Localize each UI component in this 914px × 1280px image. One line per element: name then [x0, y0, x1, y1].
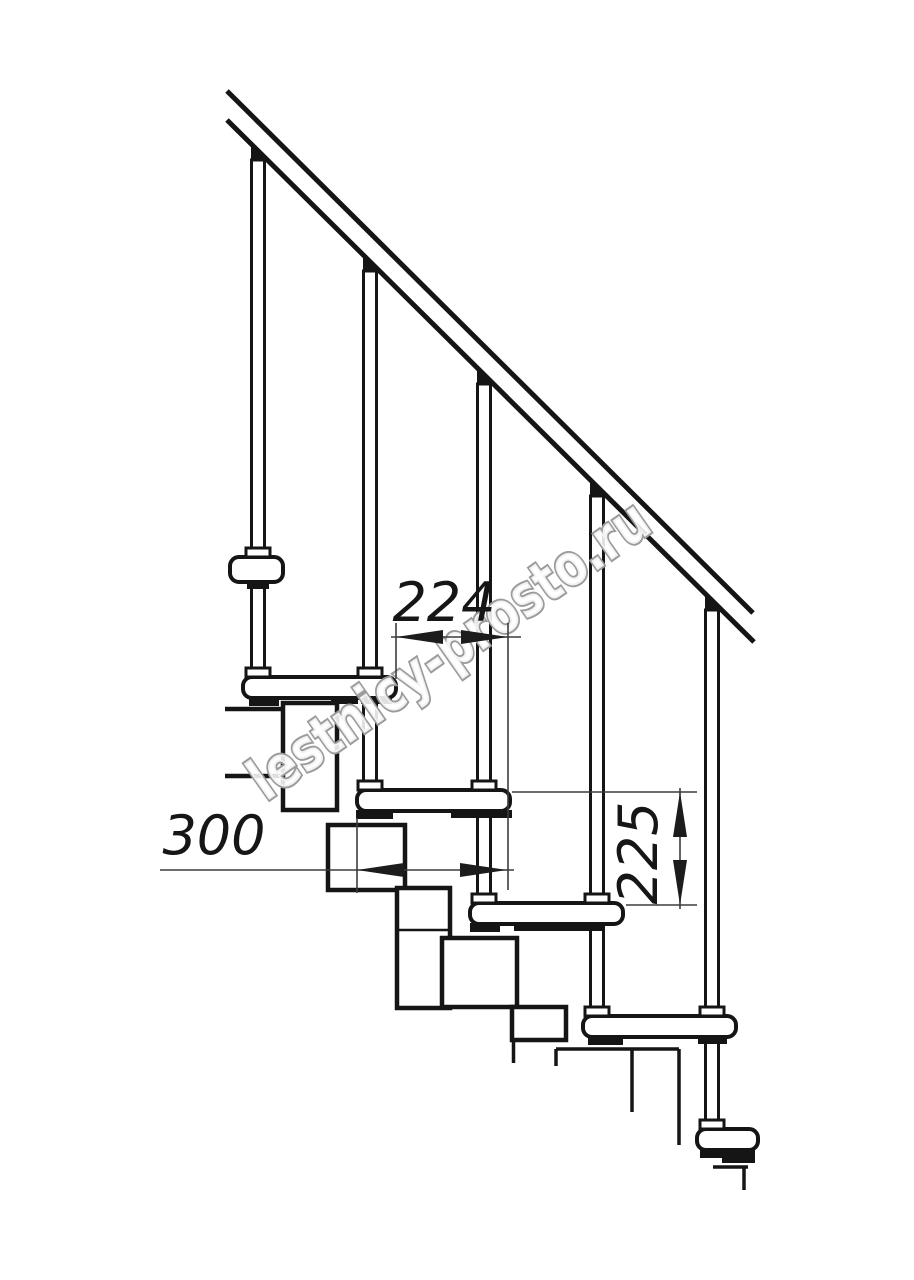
baluster-5: [706, 610, 719, 1129]
tread-5: [697, 1129, 758, 1150]
dimension-224-label: 224: [392, 571, 495, 634]
staircase-technical-drawing: lestnicy-prosto.ru 224 300 225: [0, 0, 914, 1280]
drawing-svg: lestnicy-prosto.ru 224 300 225: [0, 0, 914, 1280]
dimension-225-label: 225: [607, 801, 670, 904]
dimension-300-label: 300: [162, 804, 265, 867]
tread-4: [583, 1016, 736, 1037]
tread-0: [230, 557, 283, 582]
tread-3: [470, 903, 623, 924]
baluster-1: [252, 160, 265, 677]
tread-2: [357, 790, 510, 811]
